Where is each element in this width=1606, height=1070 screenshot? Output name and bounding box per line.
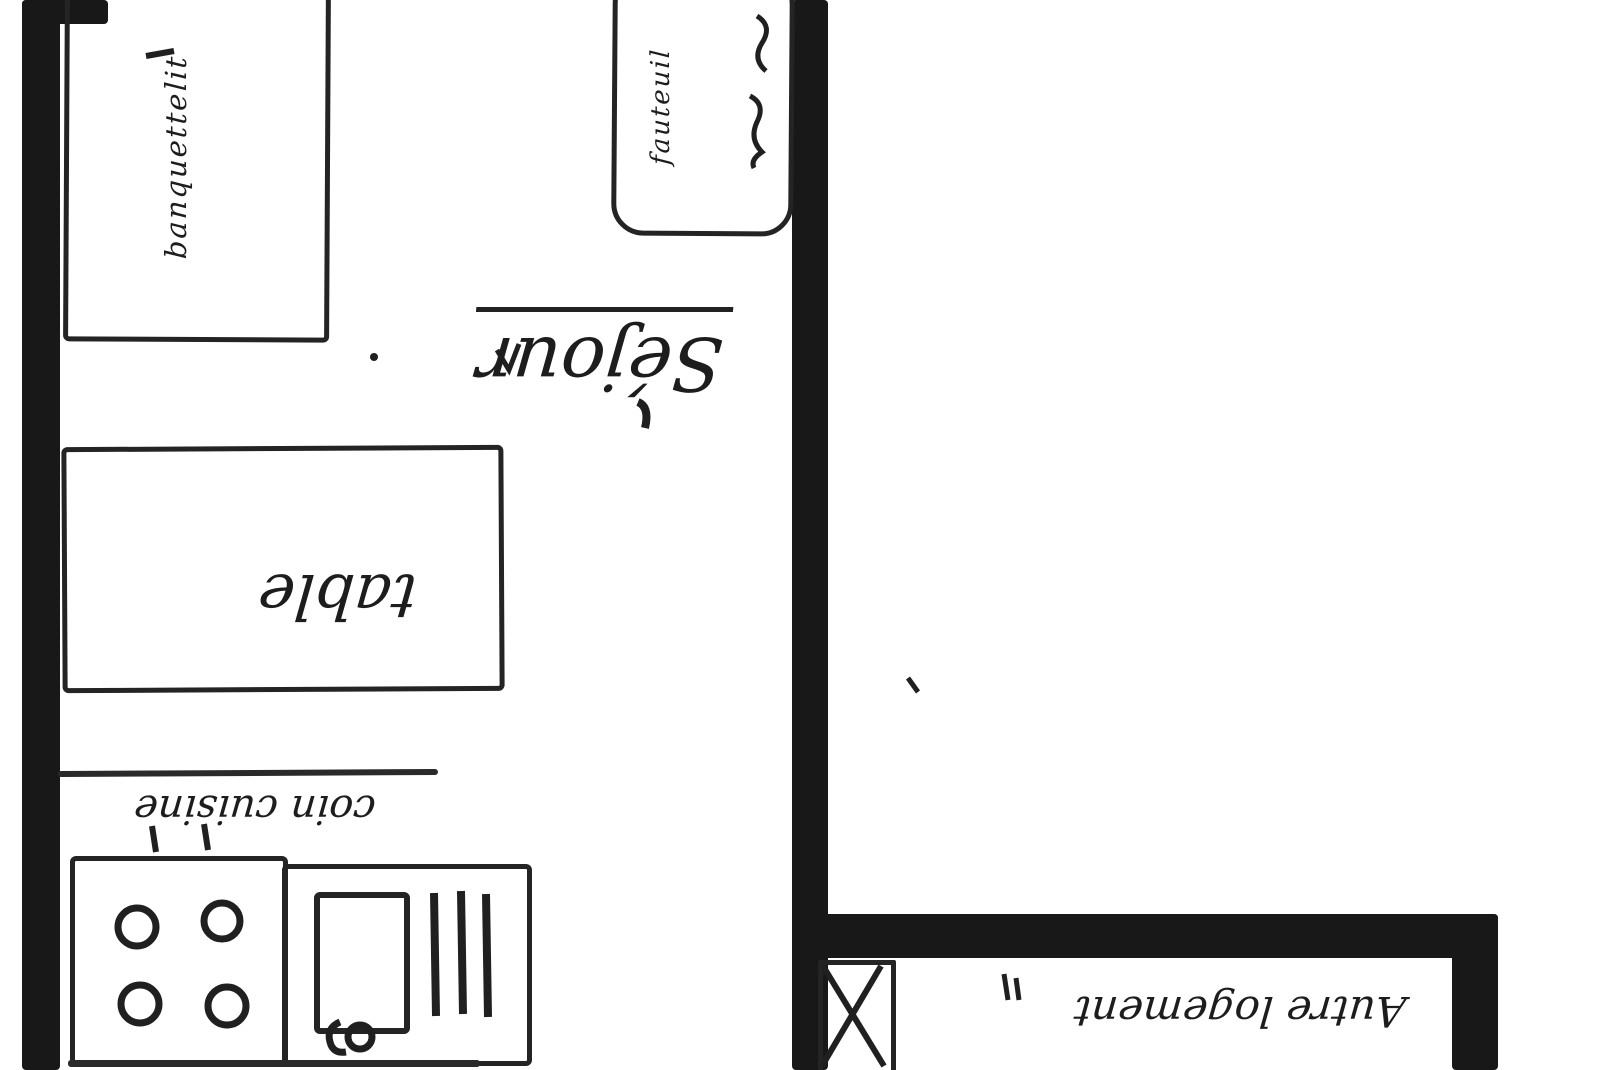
sejour-room-label: Séjour [450,298,752,414]
banquette-bed-label-line1: banquette [158,90,194,259]
coin-cuisine-label-text: coin cuisine [132,786,377,832]
wall-left [22,0,60,1070]
wall-landing-horizontal [808,914,1498,958]
table-label-text: table [255,560,419,633]
banquette-bed-label-line2: lit [158,54,194,92]
floorplan-sketch: Séjour table coin cuisine Autre logement… [0,0,1606,1070]
sink-basin [314,892,410,1034]
wall-right-of-sejour [792,0,828,1070]
armchair-label-text: fauteuil [645,47,678,166]
stray-speck-2 [1004,974,1019,1000]
coin-cuisine-label: coin cuisine [78,782,432,836]
autre-logement-label: Autre logement [1028,960,1452,1062]
sejour-room-label-text: Séjour [468,307,734,406]
stray-speck-1 [908,678,918,692]
wall-landing-right [1452,914,1498,1070]
stray-dot [370,353,378,361]
table-label: table [228,540,446,652]
kitchen-zone-line [58,769,438,777]
stove-outline [70,856,288,1066]
armchair-label: fauteuil [622,0,700,218]
banquette-bed-label: banquette lit [92,0,260,316]
autre-logement-label-text: Autre logement [1072,987,1408,1036]
shaft-box [818,960,896,1070]
bottom-edge-line [68,1060,480,1067]
